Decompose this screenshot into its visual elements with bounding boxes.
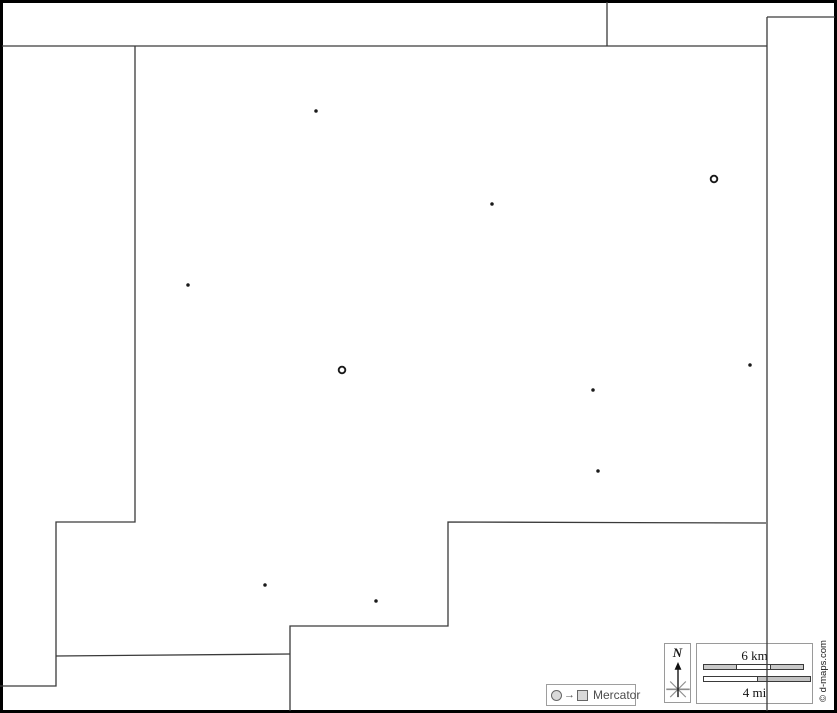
- scale-bar-segment: [704, 677, 757, 681]
- town-dot: [748, 363, 752, 367]
- projection-label: Mercator: [593, 688, 640, 702]
- projection-legend: → Mercator: [546, 684, 636, 706]
- map-canvas: N 6 km 4 mi → Mercator © d-maps.com: [0, 0, 837, 713]
- map-boundaries-layer: [0, 0, 837, 713]
- town-dot: [591, 388, 595, 392]
- county-boundary: [0, 46, 135, 686]
- town-dot: [314, 109, 318, 113]
- town-dot: [263, 583, 267, 587]
- scale-bar-segment: [757, 677, 811, 681]
- scale-km-bar: [703, 664, 804, 670]
- town-dot: [374, 599, 378, 603]
- north-arrow-icon: [665, 661, 691, 702]
- projection-square-icon: [577, 690, 588, 701]
- county-boundary: [290, 522, 766, 711]
- arrow-right-icon: →: [564, 690, 575, 700]
- scale-bar-segment: [736, 665, 769, 669]
- north-box: N: [664, 643, 691, 703]
- scale-km-label: 6 km: [697, 649, 812, 662]
- admin-center-marker: [711, 176, 718, 183]
- scale-bar-segment: [770, 665, 803, 669]
- scale-mi-bar: [703, 676, 811, 682]
- town-dot: [490, 202, 494, 206]
- north-label: N: [673, 646, 682, 660]
- town-dot: [596, 469, 600, 473]
- admin-center-marker: [339, 367, 346, 374]
- town-dot: [186, 283, 190, 287]
- county-boundary: [56, 654, 290, 656]
- scale-box: 6 km 4 mi: [696, 643, 813, 704]
- scale-bar-segment: [704, 665, 736, 669]
- projection-circle-icon: [551, 690, 562, 701]
- copyright-text: © d-maps.com: [818, 640, 830, 702]
- scale-mi-label: 4 mi: [697, 686, 812, 699]
